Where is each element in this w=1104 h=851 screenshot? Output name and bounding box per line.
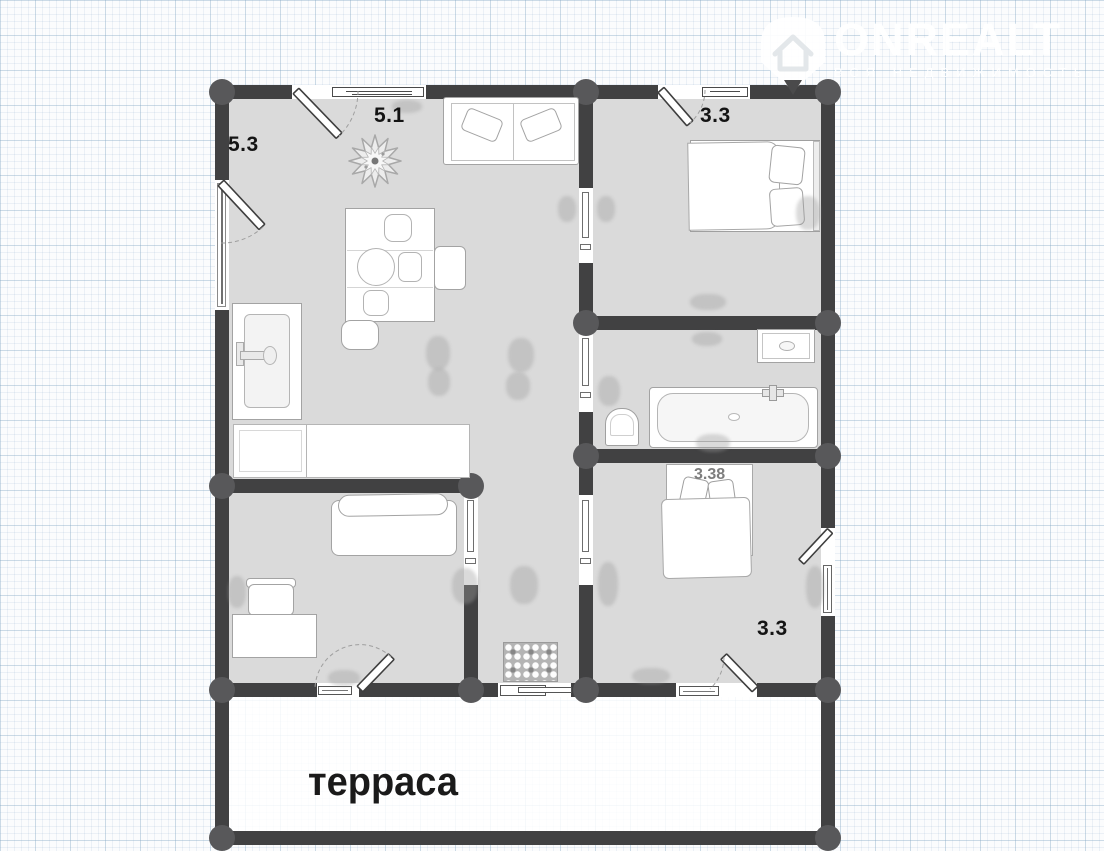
smudge (806, 566, 824, 608)
wall-bedroom-bathroom-divider (593, 316, 835, 330)
smudge (692, 332, 722, 346)
window-right-bedroom2-line (827, 568, 828, 610)
sliding-door-office (467, 500, 474, 552)
plate (384, 214, 412, 242)
sliding-door-bathroom-tick (580, 392, 591, 398)
window-bedroom-top (702, 87, 748, 97)
sliding-door-bathroom (582, 338, 589, 386)
watermark: ONREALT ВСЯ НЕДВИЖИМОСТЬ (760, 16, 1089, 96)
wall-living-office-divider (215, 479, 478, 493)
sliding-door-bedroom2 (582, 500, 589, 552)
room-label-living-left: 5.3 (228, 133, 259, 157)
smudge (452, 568, 478, 604)
window-living-top-line (346, 91, 412, 92)
room-label-living-top: 5.1 (374, 104, 405, 128)
smudge (506, 372, 530, 400)
smudge (428, 368, 450, 396)
window-living-top-line2 (352, 94, 412, 95)
watermark-tagline: ВСЯ НЕДВИЖИМОСТЬ (834, 65, 1089, 80)
smudge (696, 434, 730, 452)
corner-node (815, 825, 841, 851)
wall-middle-4 (579, 585, 593, 683)
wall-left-lower (215, 310, 229, 845)
corner-node (209, 825, 235, 851)
door-opening-bedroom-top (658, 85, 700, 99)
faucet-head (263, 346, 277, 365)
chair (434, 246, 466, 290)
smudge (508, 338, 534, 372)
house-pin-icon (760, 16, 826, 96)
smudge (426, 336, 450, 370)
corner-node (815, 443, 841, 469)
sliding-door-office-tick (465, 558, 476, 564)
table-line (347, 287, 433, 288)
corner-node (209, 473, 235, 499)
plate (363, 290, 389, 316)
daybed-bolster (338, 493, 448, 517)
watermark-text: ONREALT ВСЯ НЕДВИЖИМОСТЬ (834, 16, 1089, 80)
smudge (598, 376, 620, 406)
sliding-door-bedroom-top (582, 192, 589, 238)
bathtub-faucet-stem (769, 385, 777, 401)
smudge (690, 294, 726, 310)
plate (398, 252, 422, 282)
sliding-door-bedroom-top-tick (580, 244, 591, 250)
bed-top-blanket (687, 141, 781, 231)
smudge (632, 668, 670, 684)
door-panel-bedroom2-line (683, 691, 715, 692)
bed-dimension-label: 3.38 (694, 466, 725, 484)
bed-bottom-blanket (661, 497, 752, 579)
smudge (558, 196, 576, 222)
desk-chair (248, 584, 294, 616)
sofa-divider (513, 104, 514, 160)
corner-node (573, 443, 599, 469)
room-label-bedroom-bottom: 3.3 (757, 617, 788, 641)
smudge (228, 576, 246, 608)
corner-node (209, 677, 235, 703)
smudge (510, 566, 538, 604)
smudge (597, 196, 615, 222)
bathtub-drain (728, 413, 740, 421)
corner-node (458, 677, 484, 703)
corner-node (573, 677, 599, 703)
entrance-door-panel2 (518, 687, 572, 693)
window-left-line (221, 186, 223, 304)
corner-node (209, 79, 235, 105)
bathroom-sink-drain (779, 341, 795, 351)
chair (341, 320, 379, 350)
sliding-door-bedroom2-tick (580, 558, 591, 564)
window-living-top (332, 87, 424, 97)
room-label-bedroom-top: 3.3 (700, 104, 731, 128)
desk (232, 614, 317, 658)
wall-top-bedroom-left (593, 85, 658, 99)
smudge (796, 196, 820, 230)
smudge (598, 562, 618, 606)
window-bedroom-top-line (710, 91, 740, 92)
corner-node (815, 310, 841, 336)
watermark-brand: ONREALT (834, 16, 1089, 63)
kitchen-counter-left-inset (239, 430, 302, 472)
corner-node (573, 310, 599, 336)
corner-node (815, 677, 841, 703)
wall-terrace-bottom (215, 831, 835, 845)
bed-top-pillow (768, 144, 806, 185)
table-line (347, 250, 433, 251)
wall-right-lower (821, 616, 835, 845)
hallway-rug (503, 642, 558, 682)
smudge (328, 670, 360, 686)
door-opening-living-top (292, 85, 330, 99)
terrace-label: терраса (308, 760, 458, 805)
plate-round (357, 248, 395, 286)
floor-plan: 5.3 5.1 3.3 3.38 3.3 терраса ONREALT ВСЯ… (0, 0, 1104, 851)
kitchen-counter-right (306, 424, 470, 478)
door-panel-office-line (322, 690, 348, 691)
toilet-bowl (610, 414, 634, 436)
